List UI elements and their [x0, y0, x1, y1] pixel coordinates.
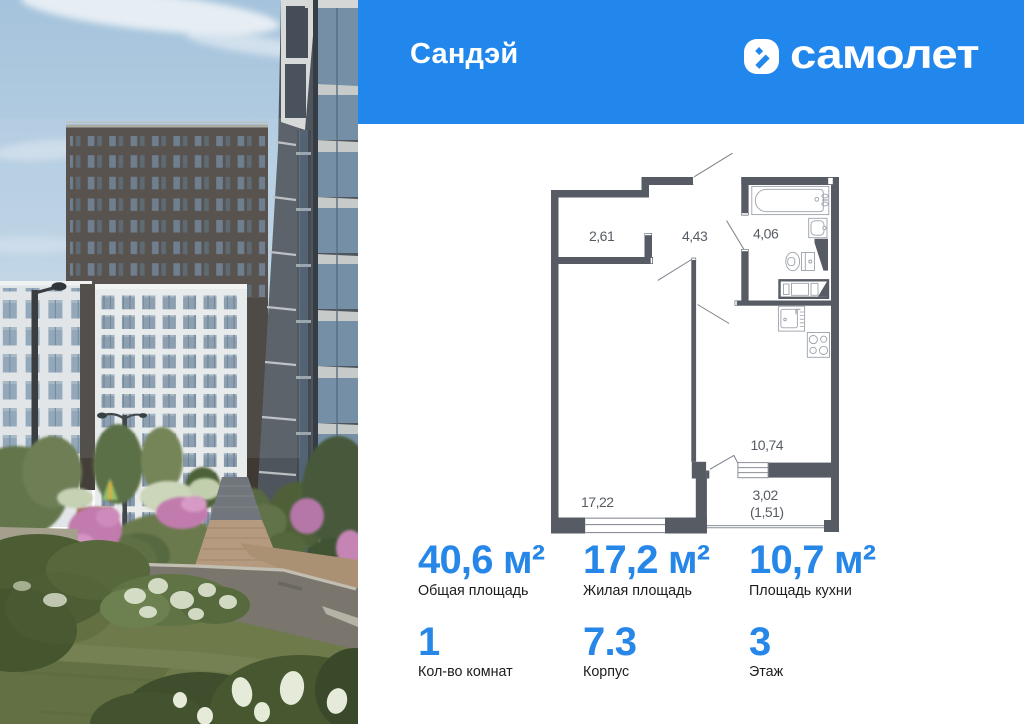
svg-text:(1,51): (1,51) [750, 504, 784, 520]
svg-text:4,06: 4,06 [753, 226, 779, 242]
svg-text:17,22: 17,22 [581, 494, 614, 510]
svg-text:2,61: 2,61 [589, 228, 615, 244]
svg-text:4,43: 4,43 [682, 228, 708, 244]
svg-text:10,74: 10,74 [751, 437, 784, 453]
svg-text:3,02: 3,02 [753, 487, 779, 503]
